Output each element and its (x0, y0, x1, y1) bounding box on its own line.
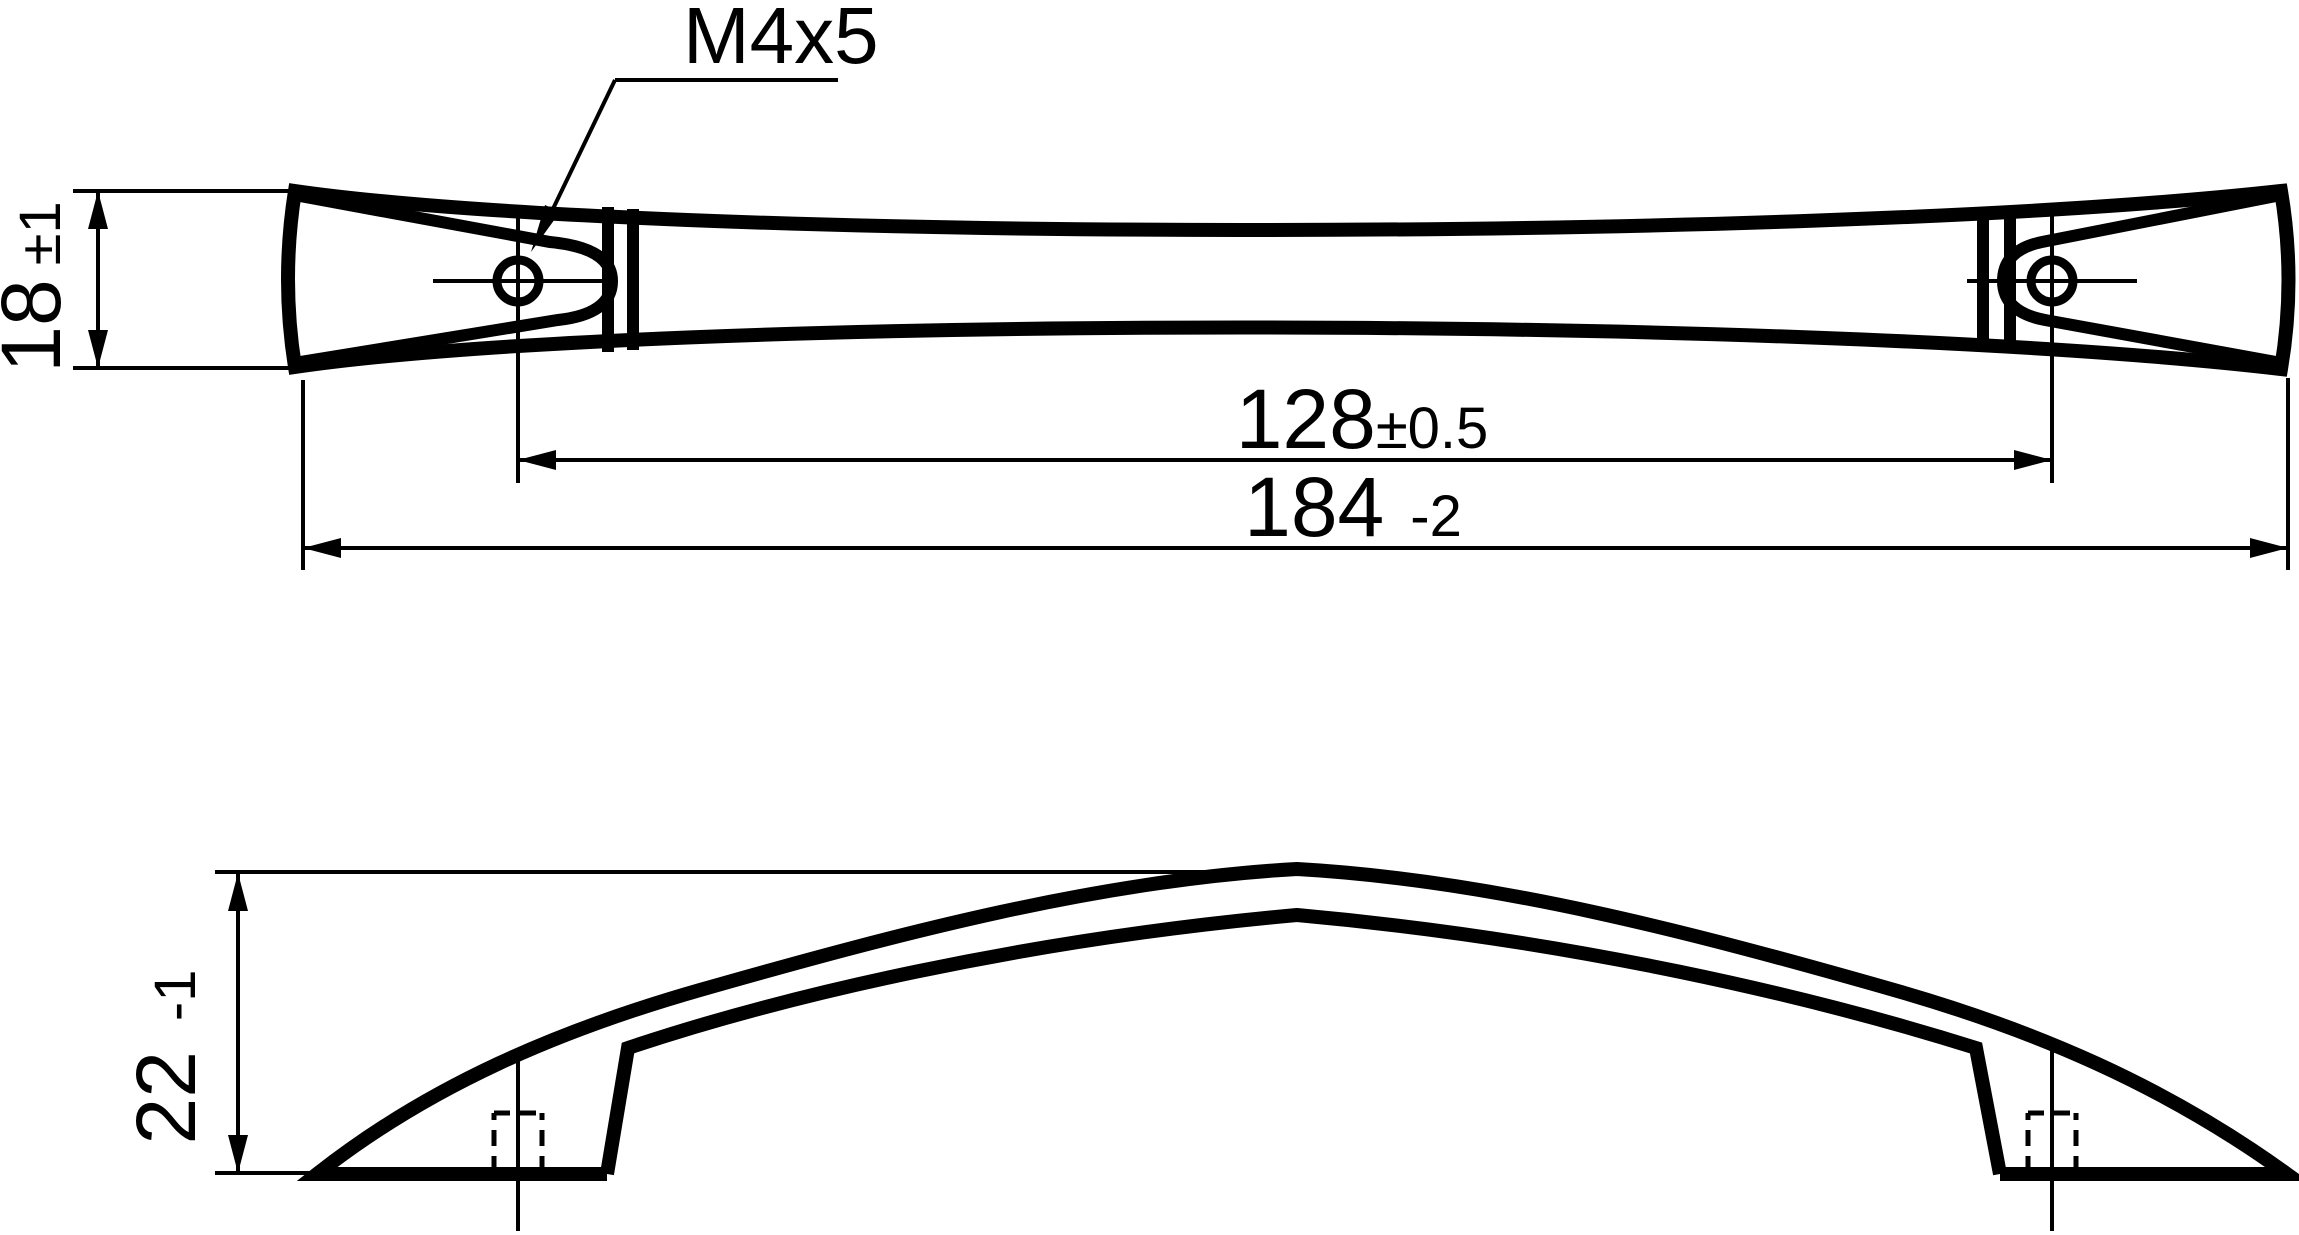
dim-arrow-up (228, 873, 248, 911)
dim-arrow-down (228, 1135, 248, 1173)
dim-hole-spacing: 128±0.5 (518, 372, 2052, 470)
dim-text-hole-spacing: 128±0.5 (1236, 372, 1489, 466)
dim-arrow-left (518, 450, 556, 470)
dim-arrow-down (88, 330, 108, 368)
dim-text-overall-length: 184-2 (1244, 460, 1462, 554)
dim-text-end-height: 18±1 (0, 201, 78, 373)
dim-text-handle-height: 22-1 (119, 969, 213, 1144)
thread-callout-label: M4x5 (683, 0, 879, 80)
side-view (317, 869, 2287, 1231)
dim-arrow-up (88, 191, 108, 229)
dim-arrow-right (2250, 538, 2288, 558)
dim-arrow-right (2014, 450, 2052, 470)
drawing-sheet: M4x5 18±1 128±0.5 184- (0, 0, 2299, 1235)
dim-end-height: 18±1 (0, 191, 293, 373)
dim-arrow-left (303, 538, 341, 558)
handle-technical-drawing: M4x5 18±1 128±0.5 184- (0, 0, 2299, 1235)
